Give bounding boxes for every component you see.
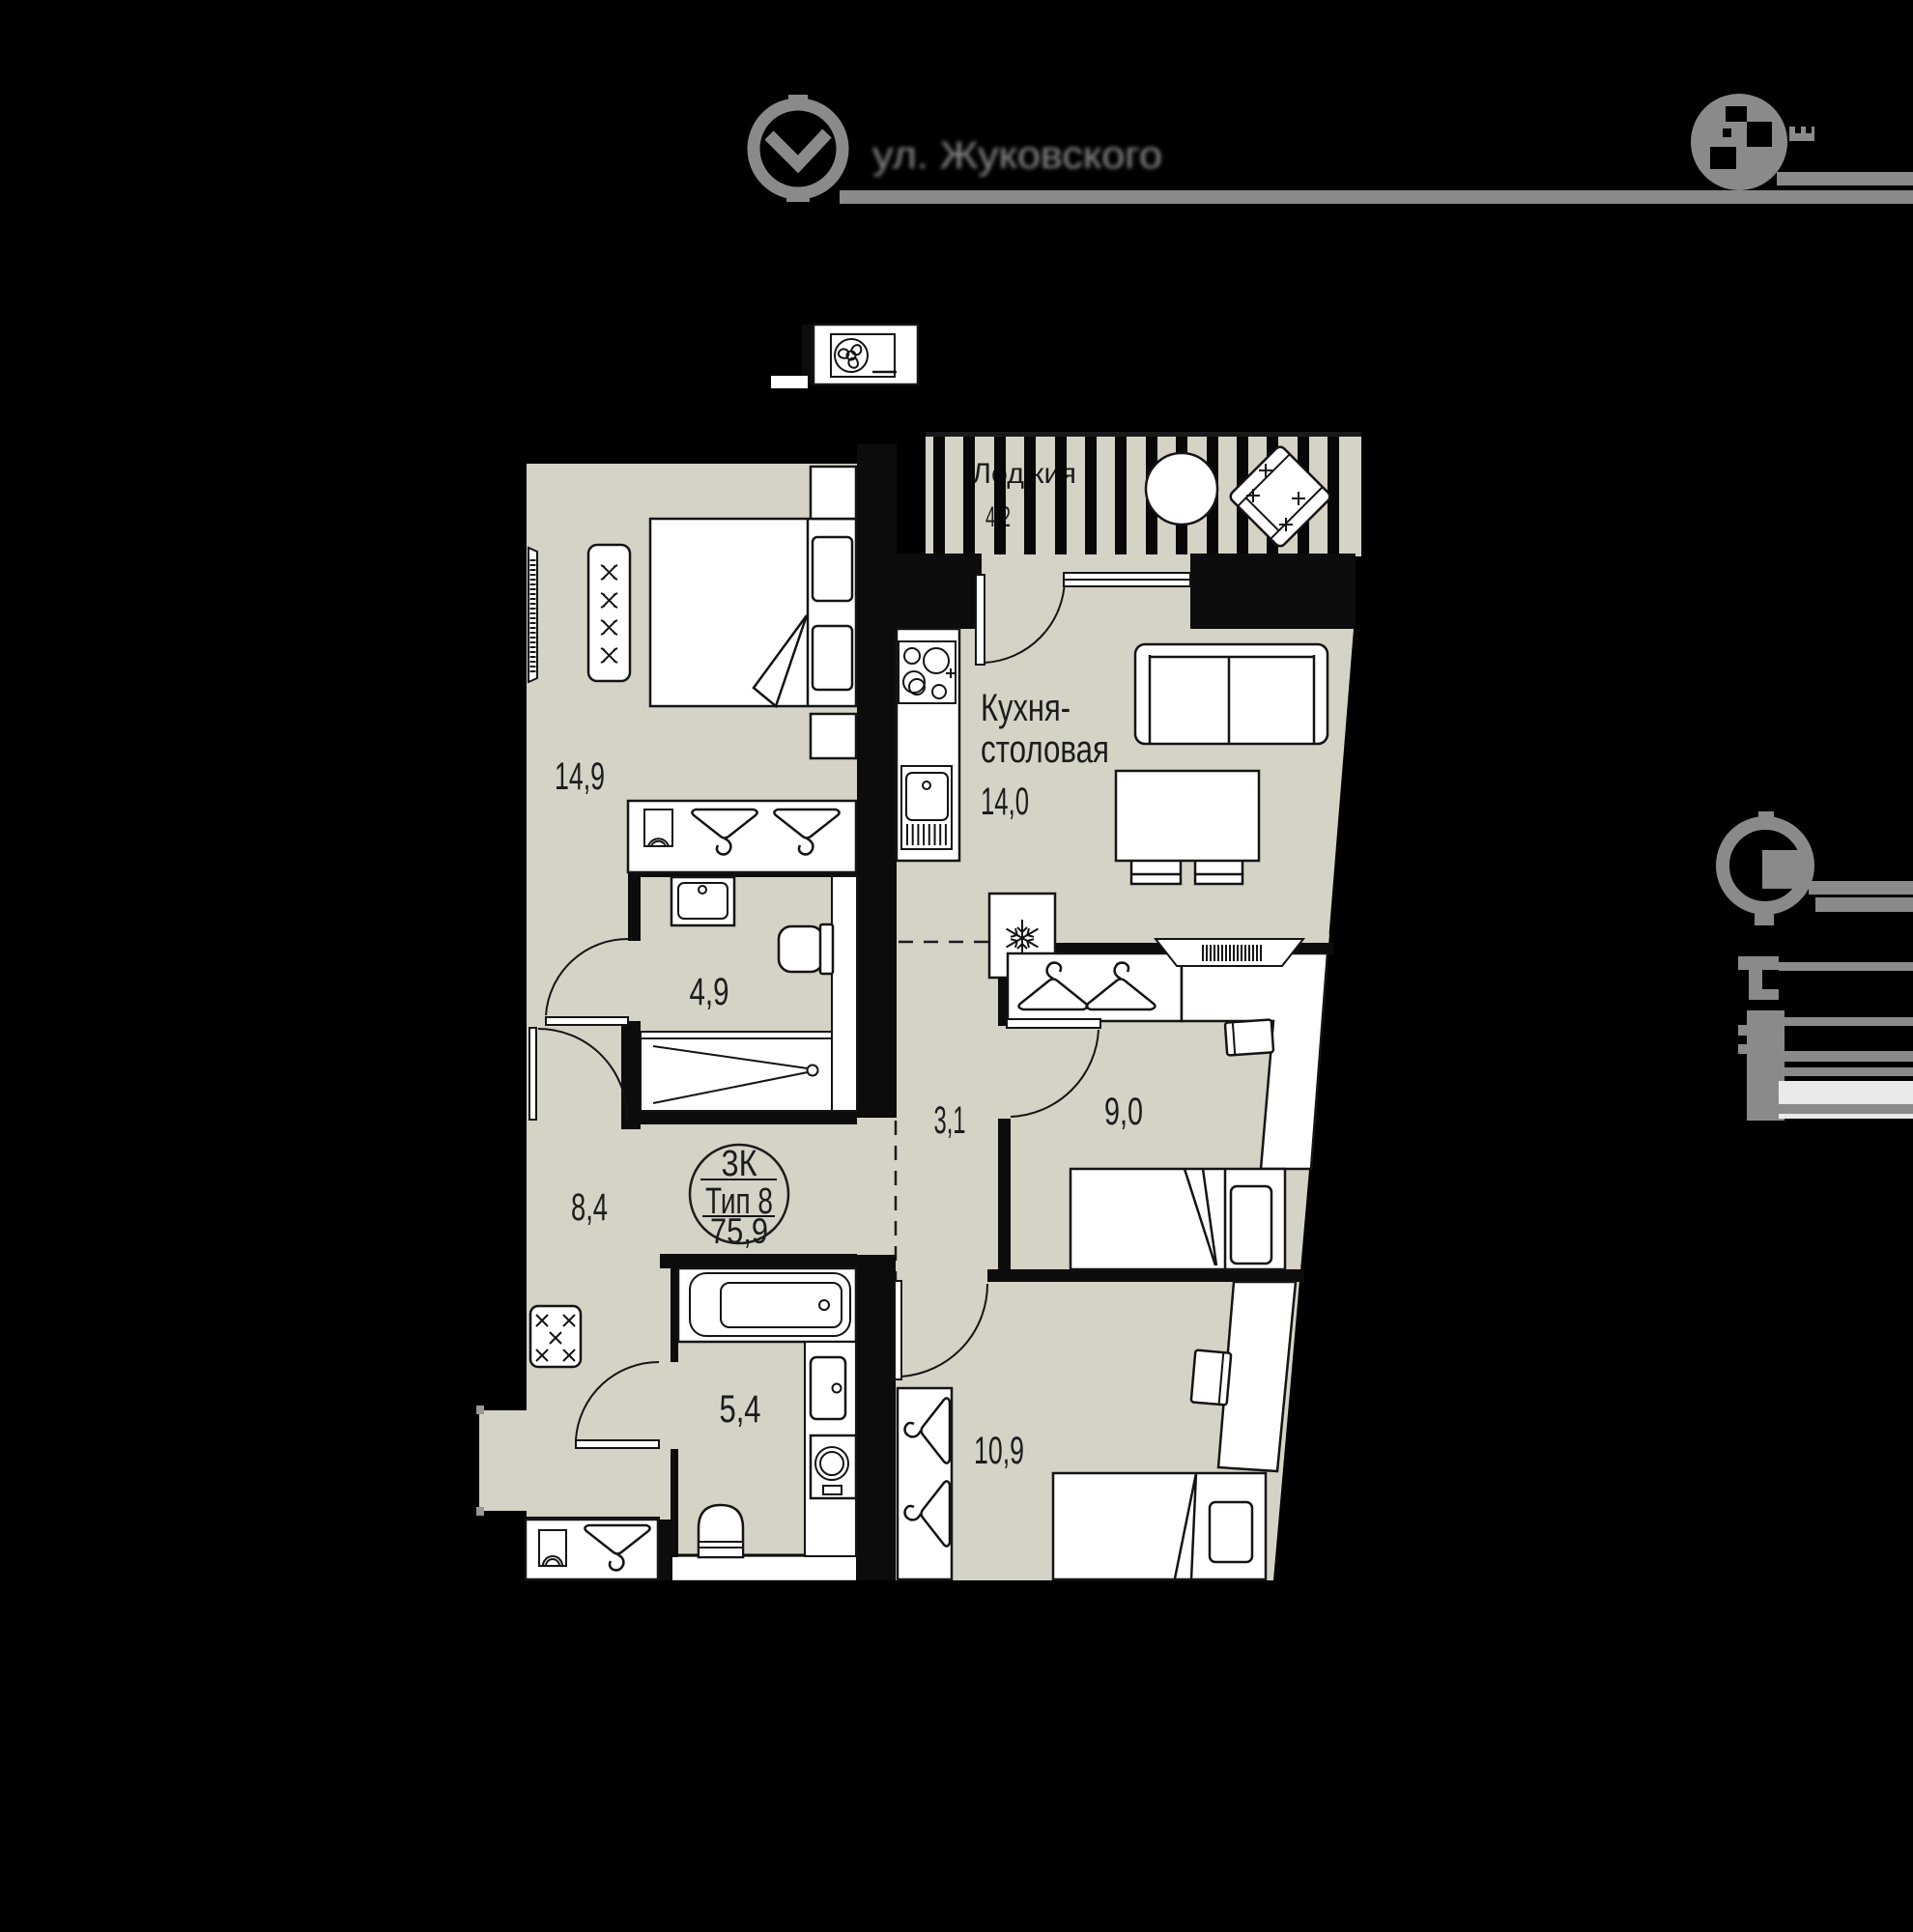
svg-text:8,4: 8,4 [571,1186,608,1229]
svg-text:9,0: 9,0 [1104,1091,1143,1133]
svg-text:ул. Жуковского: ул. Жуковского [872,134,1162,177]
svg-text:5,4: 5,4 [720,1388,761,1431]
svg-text:4,9: 4,9 [690,971,729,1013]
svg-text:14,0: 14,0 [981,781,1029,823]
svg-text:Кухня-: Кухня- [981,687,1071,729]
svg-text:столовая: столовая [981,728,1109,771]
svg-text:14,9: 14,9 [555,755,605,798]
svg-text:10,9: 10,9 [974,1430,1024,1472]
svg-text:3К: 3К [722,1144,757,1184]
svg-text:3,1: 3,1 [934,1099,966,1142]
svg-text:75,9: 75,9 [710,1211,768,1251]
